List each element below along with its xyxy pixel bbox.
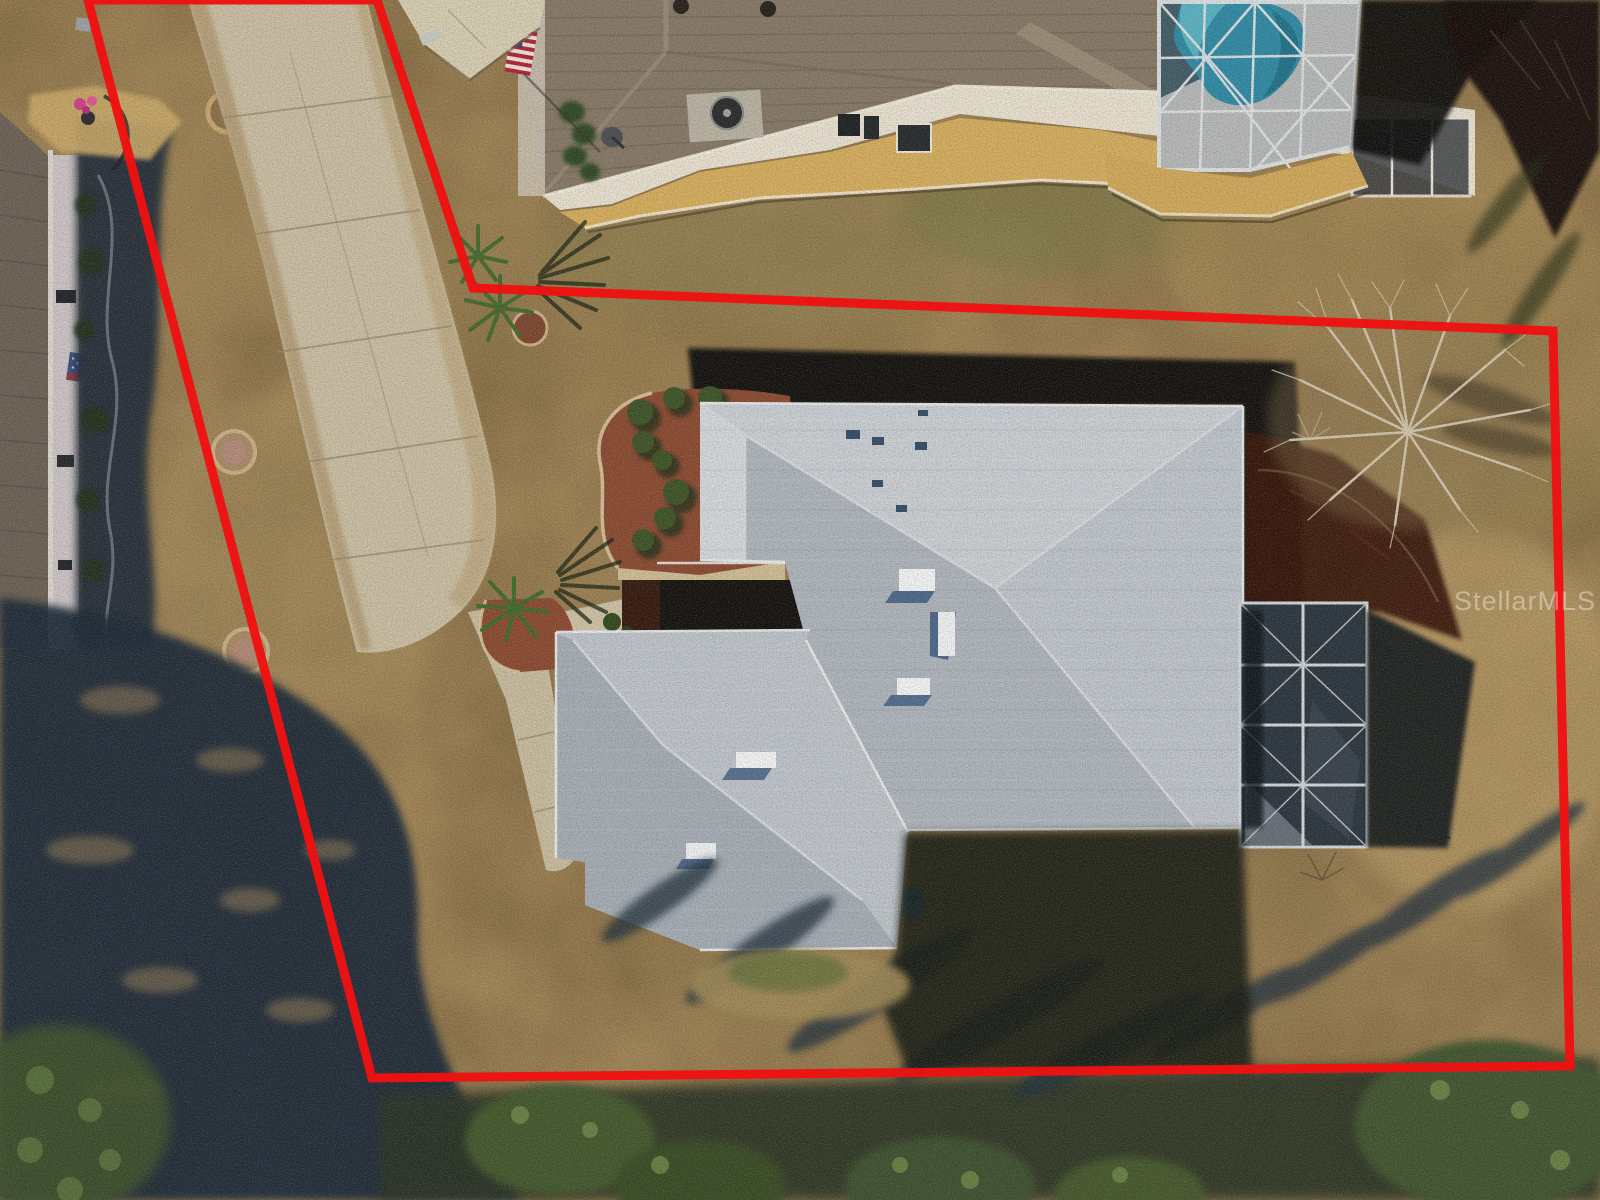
photo-grain <box>0 0 1600 1200</box>
aerial-photo: StellarMLS <box>0 0 1600 1200</box>
watermark: StellarMLS <box>1454 586 1596 616</box>
